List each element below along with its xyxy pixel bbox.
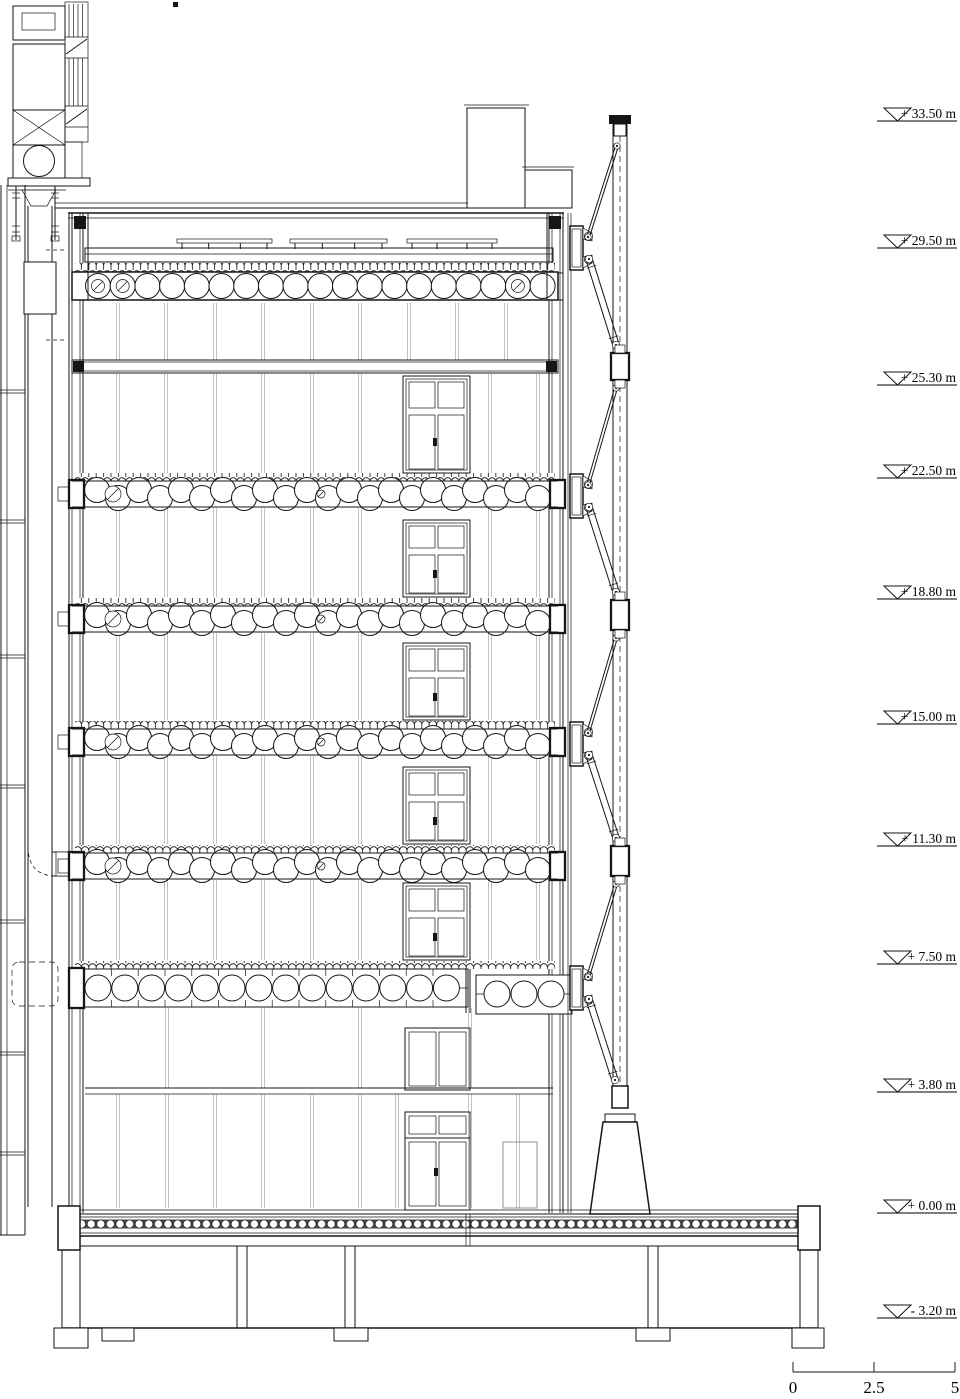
fan-circle [24,146,55,177]
mast-cap [609,115,631,124]
elevation-label: + 0.00 m [908,1198,957,1213]
mast-base-and-pedestal [590,1086,650,1214]
duct-sleeve [24,262,56,314]
elevation-marker: + 11.30 m [877,831,957,846]
elevation-marker: + 22.50 m [877,463,957,478]
elevation-label: + 15.00 m [901,709,957,724]
tie-rod [585,635,619,736]
scale-bar: 02.55 [789,1362,960,1397]
elevation-label: - 3.20 m [911,1303,957,1318]
tie-rod [585,881,619,980]
tie-rod-heavy [585,995,619,1084]
roof-cellular-beam [72,213,563,300]
floor-beam-band-7-50 [69,961,572,1014]
floor-beam-band [58,473,565,511]
access-ladder [65,2,88,178]
rooftop-plant-unit [8,2,178,241]
basement-columns [237,1246,658,1328]
scale-label: 2.5 [863,1378,884,1397]
ground-slab [58,1206,820,1250]
elevation-label: + 29.50 m [901,233,957,248]
tie-rod-heavy [585,503,620,596]
elevation-marker: + 15.00 m [877,709,957,724]
basement [54,1246,824,1348]
elevation-marker: + 29.50 m [877,233,957,248]
tie-bracket [570,226,593,270]
door-handle [434,1168,438,1176]
mast-connection-blocks [611,345,629,884]
door-assembly [403,643,470,720]
mast-block [611,345,629,388]
unit-louvre-panel [22,13,55,30]
roof-parapet [55,203,468,208]
tie-rod-heavy [585,751,620,842]
mast-block [611,592,629,638]
foundation-pads [54,1328,824,1348]
floor-beam-band [58,721,565,759]
elevation-marker: - 3.20 m [877,1303,957,1318]
elevation-marker: + 7.50 m [877,949,957,964]
service-riser-duct [0,185,70,1235]
tie-bracket [570,474,593,518]
tie-rod [585,385,619,488]
door-assembly [403,767,470,844]
reference-dot [173,2,178,7]
door-assembly [403,883,470,960]
ground-door-assembly [405,1028,470,1210]
elevation-label: + 11.30 m [901,831,956,846]
dashed-duct-connection [12,962,58,1006]
elevation-label: + 33.50 m [901,106,957,121]
door-assembly [403,520,470,597]
scale-label: 0 [789,1378,798,1397]
elevation-label: + 22.50 m [901,463,957,478]
elevation-markers: + 33.50 m+ 29.50 m+ 25.30 m+ 22.50 m+ 18… [877,106,957,1318]
tie-rod-heavy [585,255,620,349]
mast-block [611,838,629,884]
side-door [503,1142,537,1208]
elevation-marker: + 3.80 m [877,1077,957,1092]
elevation-label: + 7.50 m [908,949,957,964]
facade-tension-mast [568,115,650,1214]
slab-bubble-deck [66,1217,814,1233]
floor-beam-band [58,598,565,636]
unit-base-and-inlet [8,178,90,241]
floor-structure-bands [58,213,572,1014]
building-section-drawing: + 33.50 m+ 29.50 m+ 25.30 m+ 22.50 m+ 18… [0,0,960,1399]
tie-bracket [570,966,593,1010]
elevation-marker: + 33.50 m [877,106,957,121]
roof-penthouse [464,105,574,208]
ground-transom [85,1088,553,1094]
tie-bracket [570,722,593,766]
roof-slab [68,213,564,262]
elevation-label: + 25.30 m [901,370,957,385]
floor-beam-band [58,845,565,883]
elevation-marker: + 25.30 m [877,370,957,385]
slab-edge-beam-right [798,1206,820,1250]
elevation-marker: + 0.00 m [877,1198,957,1213]
scale-label: 5 [951,1378,960,1397]
edge-beam-25-30 [72,360,558,373]
door-assembly [403,376,470,473]
tie-rod [585,143,620,240]
cladding-panel-joints [0,390,25,1155]
elevation-marker: + 18.80 m [877,584,957,599]
facade-tie-brackets [570,226,593,1010]
elevation-label: + 18.80 m [901,584,957,599]
slab-edge-beam-left [58,1206,80,1250]
elevation-label: + 3.80 m [908,1077,957,1092]
drawing-sheet: + 33.50 m+ 29.50 m+ 25.30 m+ 22.50 m+ 18… [0,0,960,1399]
